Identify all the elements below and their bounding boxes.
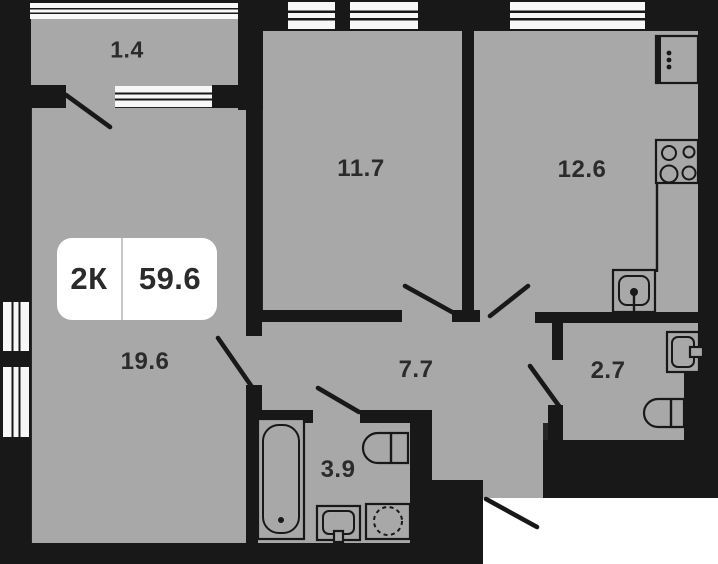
wall — [30, 85, 66, 108]
wall — [246, 410, 313, 423]
wall — [430, 480, 483, 564]
room-toilet-floor — [563, 322, 698, 440]
window — [3, 302, 29, 351]
doorway — [552, 360, 563, 405]
doorway — [246, 336, 262, 385]
wall — [698, 0, 718, 470]
wall — [238, 0, 263, 110]
doorway — [480, 310, 535, 323]
wall — [684, 372, 698, 440]
room-label-bathroom: 3.9 — [321, 456, 356, 484]
wall — [246, 412, 258, 543]
wall — [552, 322, 563, 360]
wall — [0, 0, 31, 564]
room-label-bedroom: 11.7 — [337, 155, 384, 183]
room-label-hallway: 7.7 — [399, 356, 434, 384]
doorway — [402, 310, 452, 322]
room-label-balcony: 1.4 — [110, 37, 143, 64]
outside-area — [460, 498, 718, 564]
floor-plan: 1.4 11.7 12.6 19.6 7.7 2.7 3.9 2К 59.6 — [0, 0, 718, 564]
apartment-badge: 2К 59.6 — [57, 238, 217, 320]
window — [115, 86, 212, 107]
wall — [410, 412, 432, 543]
wall — [246, 108, 262, 336]
wall — [462, 31, 474, 312]
wall — [246, 385, 262, 412]
wall — [543, 440, 718, 498]
window — [510, 2, 645, 29]
badge-total-area: 59.6 — [121, 238, 217, 320]
window — [3, 367, 29, 437]
wall — [360, 410, 432, 423]
window — [350, 2, 418, 29]
window — [30, 3, 238, 19]
window — [288, 2, 335, 29]
room-label-toilet: 2.7 — [591, 357, 626, 385]
room-living-floor — [32, 108, 246, 543]
room-label-living: 19.6 — [121, 348, 170, 376]
room-label-kitchen: 12.6 — [558, 156, 607, 184]
badge-rooms-count: 2К — [57, 238, 121, 320]
wall — [246, 310, 402, 322]
wall — [0, 543, 446, 564]
wall — [548, 405, 563, 440]
wall — [452, 310, 480, 322]
doorway — [66, 85, 115, 108]
wall — [212, 85, 238, 108]
doorway — [313, 410, 360, 423]
